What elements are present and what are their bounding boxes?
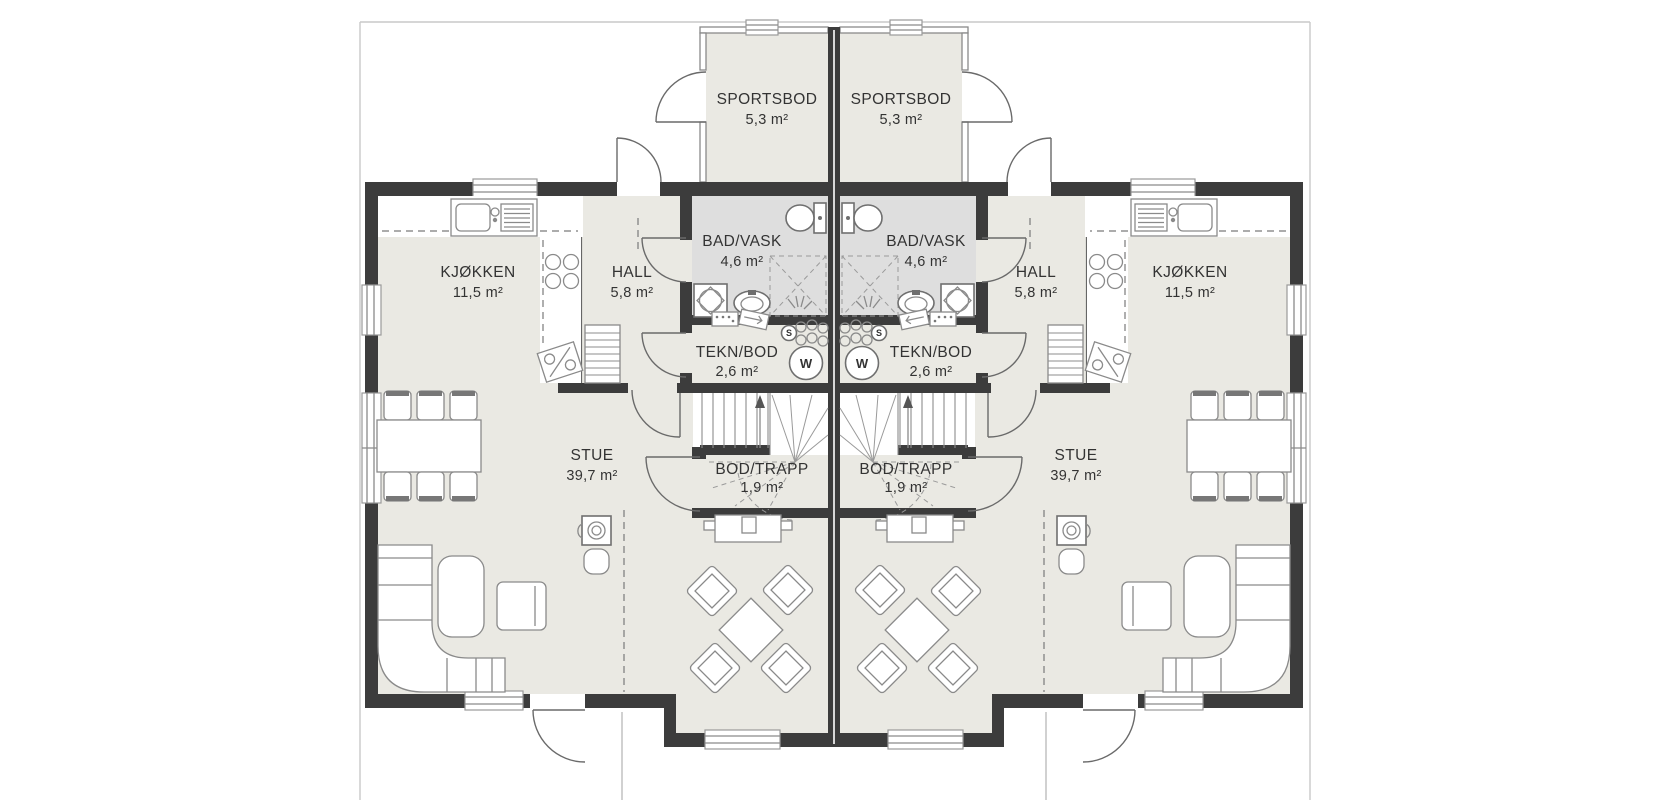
room-area-badvask: 4,6 m² xyxy=(905,254,948,270)
wood-stove-icon xyxy=(578,516,611,545)
room-label-teknbod: TEKN/BOD xyxy=(696,344,778,361)
room-label-stue: STUE xyxy=(1055,447,1098,464)
room-area-badvask: 4,6 m² xyxy=(721,254,764,270)
room-label-badvask: BAD/VASK xyxy=(886,233,966,250)
room-label-badvask: BAD/VASK xyxy=(702,233,782,250)
hall-stair xyxy=(585,325,620,383)
floor-plan: SPORTSBOD 5,3 m² BAD/VASK 4,6 m² HALL 5,… xyxy=(0,0,1670,800)
room-area-kjokken: 11,5 m² xyxy=(1165,285,1215,301)
entrance-door xyxy=(617,138,661,182)
room-label-bodtrapp: BOD/TRAPP xyxy=(859,461,952,478)
room-area-bodtrapp: 1,9 m² xyxy=(885,480,928,496)
bay-floor xyxy=(676,694,828,733)
sink-s-label: S xyxy=(876,328,882,338)
right-unit-mirror xyxy=(834,20,1306,800)
dining-table-set xyxy=(377,391,481,501)
toilet-icon xyxy=(786,203,826,233)
room-label-sportsbod: SPORTSBOD xyxy=(717,91,818,108)
room-label-hall: HALL xyxy=(1016,264,1056,281)
room-area-kjokken: 11,5 m² xyxy=(453,285,503,301)
water-heater-label: W xyxy=(800,356,813,371)
room-area-bodtrapp: 1,9 m² xyxy=(741,480,784,496)
sportsbod-door xyxy=(656,72,706,122)
stool xyxy=(584,549,609,574)
water-heater-label: W xyxy=(856,356,869,371)
room-label-kjokken: KJØKKEN xyxy=(440,264,515,281)
room-area-hall: 5,8 m² xyxy=(611,285,654,301)
room-area-sportsbod: 5,3 m² xyxy=(746,112,789,128)
sink-s-label: S xyxy=(786,328,792,338)
left-unit xyxy=(362,20,834,800)
room-area-teknbod: 2,6 m² xyxy=(716,364,759,380)
wall-cabinet-icon xyxy=(712,312,738,326)
room-label-teknbod: TEKN/BOD xyxy=(890,344,972,361)
sideboard xyxy=(704,515,792,542)
armchair xyxy=(497,582,546,630)
coffee-table xyxy=(438,556,484,637)
room-area-stue: 39,7 m² xyxy=(566,468,617,484)
room-label-stue: STUE xyxy=(571,447,614,464)
stue-exterior-door xyxy=(533,710,585,762)
room-area-hall: 5,8 m² xyxy=(1015,285,1058,301)
room-label-kjokken: KJØKKEN xyxy=(1152,264,1227,281)
room-label-bodtrapp: BOD/TRAPP xyxy=(715,461,808,478)
room-label-sportsbod: SPORTSBOD xyxy=(851,91,952,108)
room-label-hall: HALL xyxy=(612,264,652,281)
room-area-stue: 39,7 m² xyxy=(1050,468,1101,484)
room-area-teknbod: 2,6 m² xyxy=(910,364,953,380)
room-area-sportsbod: 5,3 m² xyxy=(880,112,923,128)
